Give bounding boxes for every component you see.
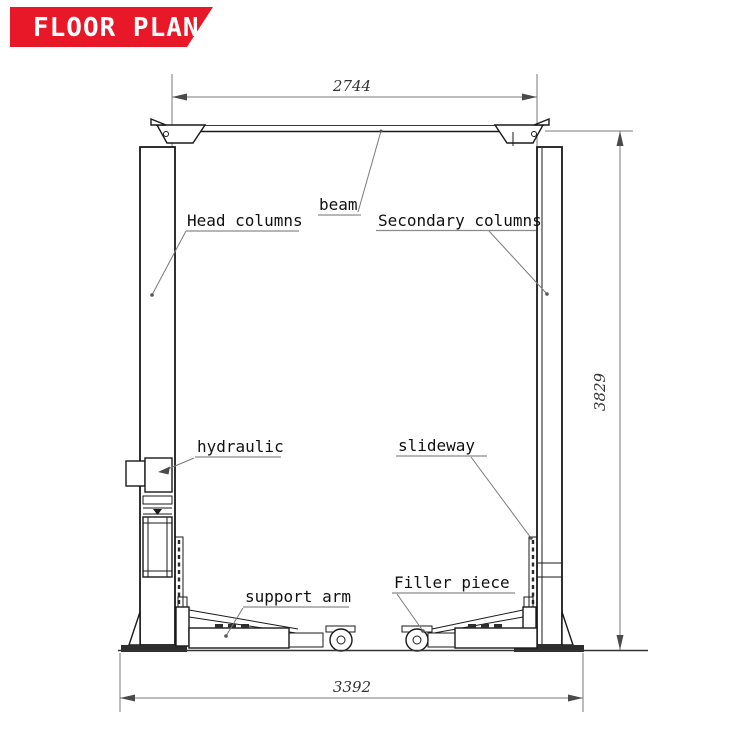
support-arm-body — [189, 628, 289, 648]
left-carriage — [143, 517, 172, 577]
floor-plan-drawing: FLOOR PLAN 2744 3829 — [0, 0, 750, 750]
label-head-columns: Head columns — [187, 211, 303, 230]
page-title: FLOOR PLAN — [33, 13, 200, 43]
filler-arm-body — [455, 628, 537, 648]
title-banner: FLOOR PLAN — [10, 7, 213, 47]
beam-right-bracket — [495, 125, 543, 143]
label-filler-piece: Filler piece — [394, 573, 510, 592]
beam — [151, 119, 549, 146]
label-slideway: slideway — [398, 436, 475, 455]
dimension-value-top: 2744 — [332, 77, 371, 95]
right-gusset — [562, 612, 573, 645]
beam-left-bracket — [157, 125, 205, 143]
dimension-value-bottom: 3392 — [333, 678, 371, 696]
dimension-beam-span: 2744 — [172, 74, 537, 147]
dimension-base-span: 3392 — [120, 653, 583, 712]
hydraulic-unit — [126, 458, 172, 492]
filler-piece-arm — [402, 597, 537, 651]
label-support-arm: support arm — [245, 587, 351, 606]
left-lift-pad — [330, 629, 352, 651]
dimension-value-right: 3829 — [591, 372, 609, 411]
part-labels: Head columns beam Secondary columns hydr… — [186, 195, 542, 607]
label-secondary-columns: Secondary columns — [378, 211, 542, 230]
label-hydraulic: hydraulic — [197, 437, 284, 456]
left-gusset — [129, 612, 140, 645]
right-lift-pad — [406, 629, 428, 651]
label-beam: beam — [319, 195, 358, 214]
head-column — [121, 147, 187, 652]
